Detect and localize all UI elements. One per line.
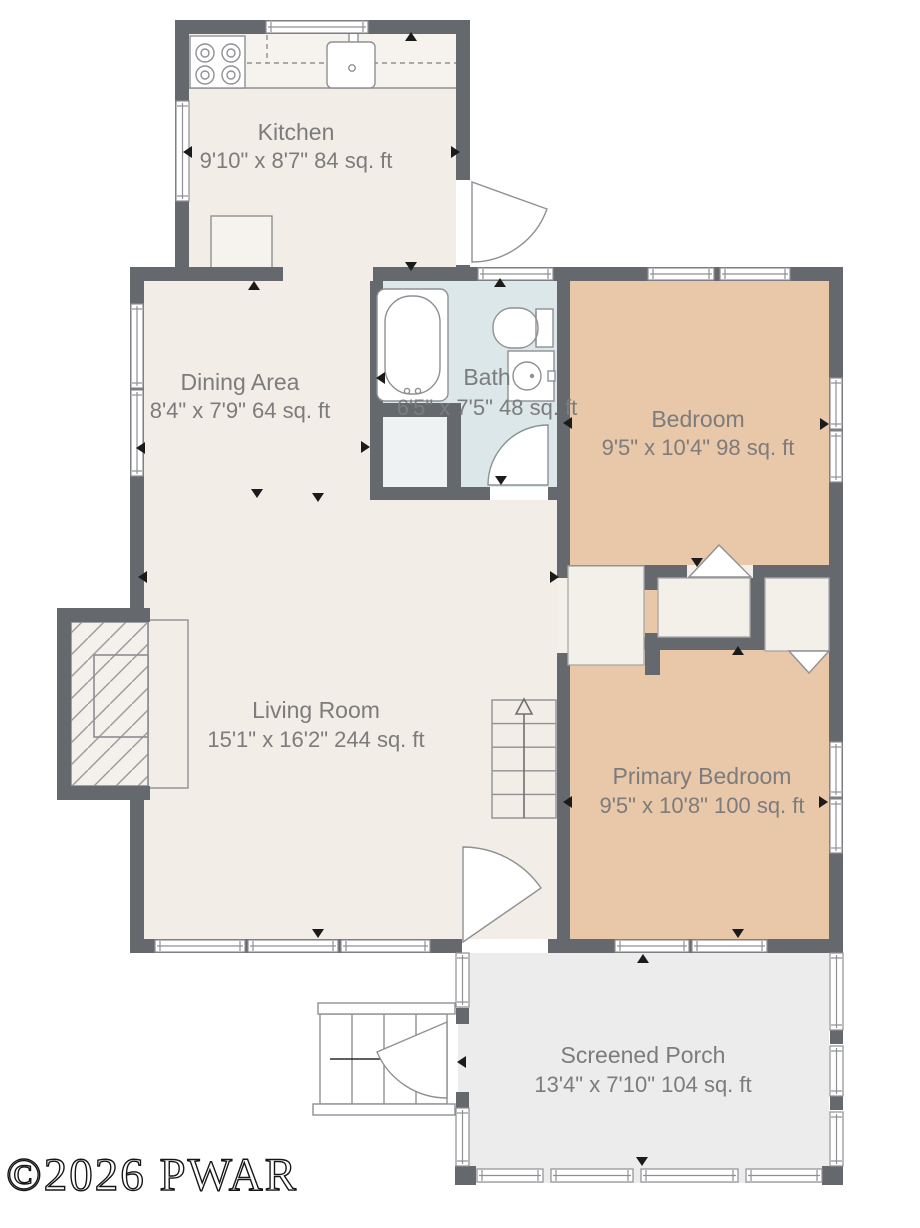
primary-closet [765,578,829,651]
window-icon [830,799,842,853]
window-icon [720,268,790,280]
bedroom-dims: 9'5" x 10'4" 98 sq. ft [602,435,795,460]
window-icon [830,1112,843,1166]
wall-segment [830,1096,843,1110]
wall-segment [643,565,658,590]
window-icon [477,1169,543,1182]
window-icon [551,1169,633,1182]
stove-icon [190,36,245,88]
window-icon [155,940,245,952]
wall-segment [455,1166,476,1185]
wall-segment [557,281,570,578]
window-icon [830,742,842,797]
bath-label: Bath [463,364,510,390]
wall-segment [57,608,71,800]
floor-plan-image: Kitchen 9'10" x 8'7" 84 sq. ft Dining Ar… [0,0,920,1228]
wall-segment [456,1092,469,1108]
kitchen-dims: 9'10" x 8'7" 84 sq. ft [200,148,393,173]
window-icon [615,940,689,952]
bathroom-sink-icon [508,351,555,401]
wall-segment [456,1008,469,1024]
hall-closet [568,566,644,665]
door-opening [462,939,548,953]
door-opening [456,180,470,265]
toilet-icon [493,308,553,348]
window-icon [830,378,842,429]
wall-segment [822,1166,843,1185]
window-icon [248,940,338,952]
window-icon [266,21,368,33]
wall-segment [557,653,570,939]
living-dims: 15'1" x 16'2" 244 sq. ft [207,727,424,752]
window-icon [692,940,767,952]
bedroom-label: Bedroom [651,406,744,432]
window-icon [648,268,714,280]
window-icon [830,953,843,1030]
wall-segment [57,786,150,800]
wall-segment [548,487,570,500]
bedroom-vestibule [658,578,750,637]
kitchen-exterior-door-icon [472,182,547,262]
primary-label: Primary Bedroom [613,763,792,789]
window-icon [341,940,430,952]
porch-floor [458,953,829,1183]
window-icon [131,390,143,476]
watermark: ©2026 PWAR [6,1149,298,1201]
window-icon [830,1046,843,1096]
window-icon [456,953,469,1007]
wall-segment [370,487,490,500]
bathtub-icon [377,289,448,401]
door-opening [490,487,548,500]
kitchen-label: Kitchen [258,119,335,145]
wall-segment [830,1030,843,1044]
door-opening [283,267,373,281]
porch-label: Screened Porch [561,1042,726,1068]
floor-plan-svg: Kitchen 9'10" x 8'7" 84 sq. ft Dining Ar… [0,0,920,1228]
window-icon [830,431,842,482]
window-icon [641,1169,738,1182]
dining-dims: 8'4" x 7'9" 64 sq. ft [150,398,331,423]
wall-segment [130,800,144,953]
porch-dims: 13'4" x 7'10" 104 sq. ft [534,1072,751,1097]
window-icon [456,1108,469,1166]
window-icon [131,304,143,388]
primary-dims: 9'5" x 10'8" 100 sq. ft [599,793,804,818]
window-icon [746,1169,822,1182]
living-label: Living Room [252,697,380,723]
kitchen-island [211,216,272,273]
bath-closet [383,417,447,487]
bath-dims: 6'5" x 7'5" 48 sq. ft [397,395,578,420]
window-icon [478,268,553,280]
dining-label: Dining Area [181,369,300,395]
